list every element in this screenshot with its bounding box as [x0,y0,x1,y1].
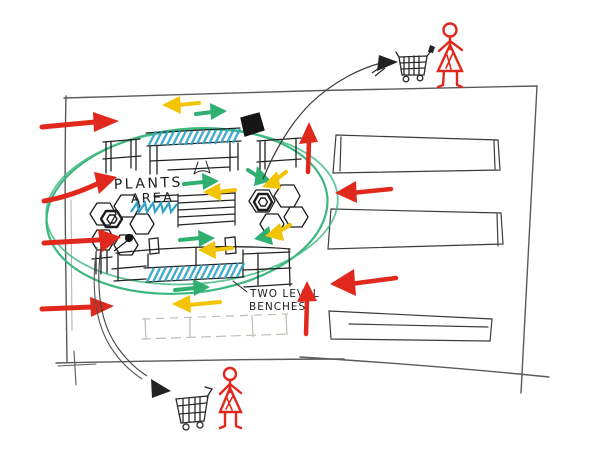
bench-post-box-1 [149,238,159,254]
aisle-shelf-3 [329,311,492,341]
shopping-cart-icon [396,45,435,82]
two-level-benches-label-2: BENCHES [249,301,306,313]
path-arrowhead-bottom [151,379,171,398]
red-arrow-aisle-gap-lower [330,269,396,296]
aisle-shelf-1 [333,135,500,173]
left-table [103,139,141,173]
boundary-left [65,96,67,362]
checkout-top-right [396,24,462,88]
checkout-bottom [176,368,241,430]
aisle-shelves [328,135,503,341]
red-arrow-entry-top-left [42,112,119,132]
green-arrow-top [196,103,227,120]
sign-black-scribble [241,113,264,136]
boundary-bottom-left [56,359,344,363]
boundary-top [64,86,537,98]
store-layout-sketch: PLANTS AREA TWO LEVEL BENCHES [0,0,600,450]
red-arrow-up-top [299,122,318,172]
person-icon [220,368,241,428]
boundary-right [521,86,537,393]
yellow-arrow-bottom [172,295,220,313]
red-arrow-aisle-gap-upper [335,181,391,203]
path-arrowhead-top [377,55,398,71]
boundary-bottom-right [300,357,549,377]
bench-post-box-2 [225,237,236,254]
bench-body [150,143,238,174]
area-underline-scribble [131,203,177,212]
person-icon [438,24,462,88]
aisle-shelf-2 [328,209,503,249]
shopping-cart-icon [176,387,212,430]
top-bench-hatch [149,129,240,145]
yellow-arrow-top [162,96,199,114]
post-dot-left [125,234,132,241]
pencil-shelf [141,314,289,340]
boundary-corner-tick [58,351,96,385]
